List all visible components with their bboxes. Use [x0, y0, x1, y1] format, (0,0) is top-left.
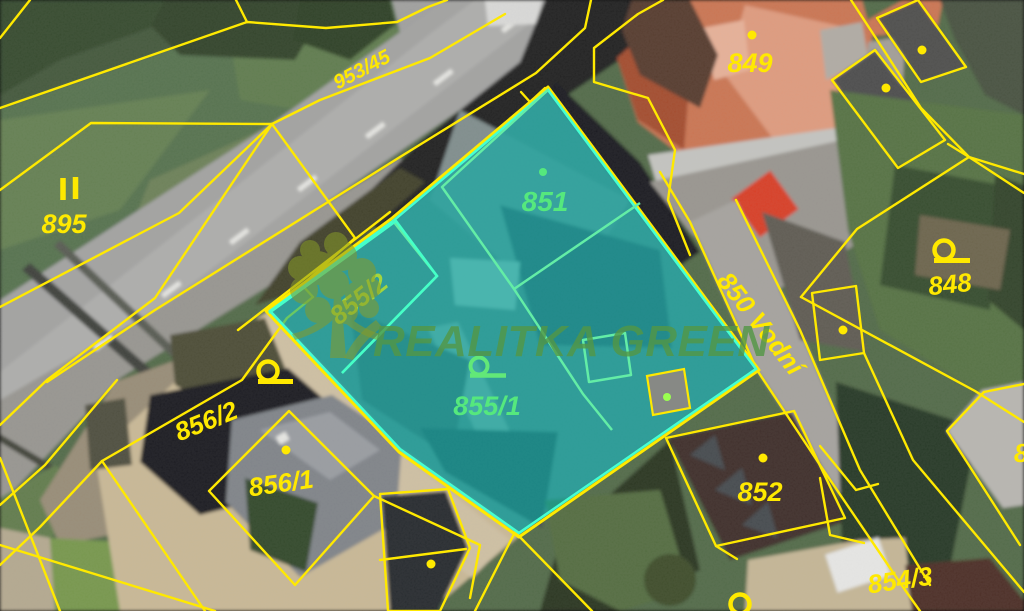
- svg-text:849: 849: [727, 48, 772, 78]
- svg-text:852: 852: [737, 477, 782, 507]
- svg-text:855/1: 855/1: [453, 391, 521, 421]
- svg-text:895: 895: [41, 209, 87, 239]
- svg-text:848: 848: [927, 267, 974, 301]
- svg-text:8: 8: [1014, 438, 1024, 468]
- svg-text:REALITKA GREEN: REALITKA GREEN: [373, 317, 770, 366]
- svg-text:851: 851: [522, 186, 569, 217]
